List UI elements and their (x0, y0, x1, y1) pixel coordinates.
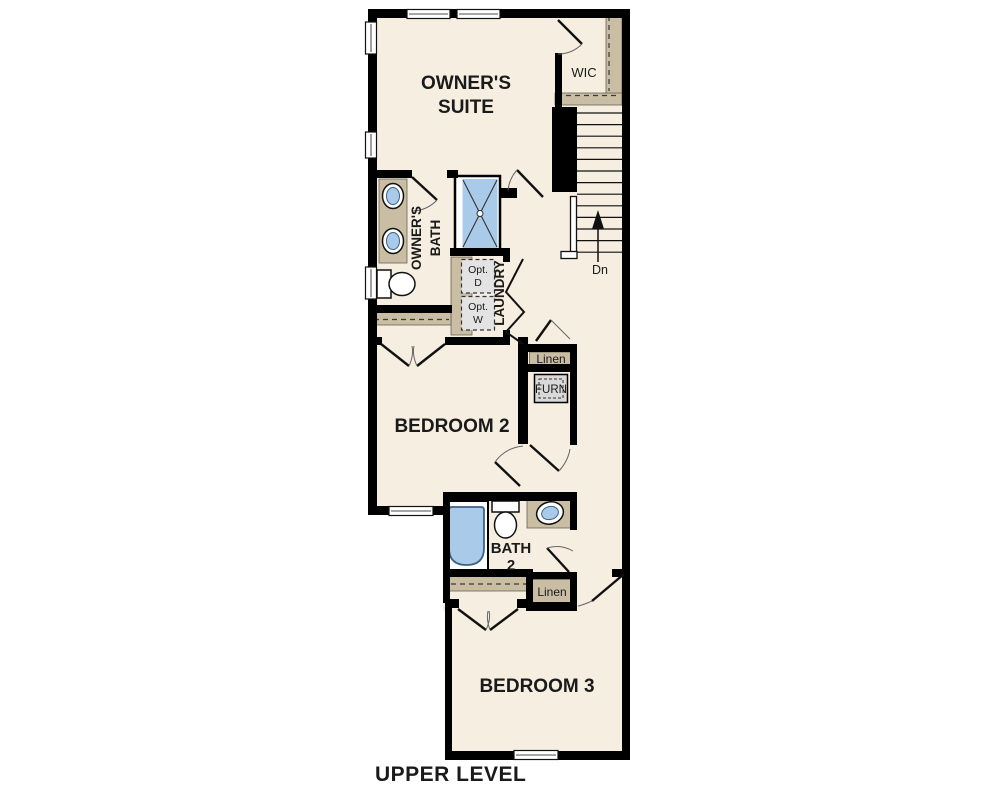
floor-areas (368, 9, 630, 760)
bedroom3-label: BEDROOM 3 (479, 676, 594, 697)
owners-bath-sink-1 (383, 184, 404, 209)
bath2-toilet (492, 501, 519, 538)
stairs-dn-label: Dn (592, 263, 608, 277)
stair-railing-cap (561, 252, 577, 259)
window-bath-left (366, 267, 377, 299)
floorplan-drawing: OWNER'S SUITE WIC OWNER'S BATH LAUNDRY O… (0, 0, 1000, 800)
bath2-label-2: 2 (507, 557, 515, 574)
opt-washer-label-1: Opt. (468, 301, 488, 313)
owners-bath-shower (455, 176, 500, 251)
owners-bath-label-1: OWNER'S (409, 206, 424, 270)
window-bedroom3-bottom (514, 751, 558, 760)
window-suite-left-2 (366, 132, 377, 158)
window-suite-left-1 (366, 22, 377, 54)
bath2-tub (446, 501, 488, 571)
window-suite-top-2 (457, 10, 500, 19)
bedroom2-closet (371, 312, 451, 325)
owners-bath-label-2: BATH (428, 220, 443, 257)
opt-dryer-label-1: Opt. (468, 264, 488, 276)
laundry-label: LAUNDRY (492, 260, 507, 326)
stair-railing (571, 197, 577, 257)
linen-lower-label: Linen (537, 585, 566, 599)
furnace-label: FURN (535, 384, 567, 396)
opt-dryer-label-2: D (474, 277, 482, 289)
owners-bath-toilet (377, 270, 415, 298)
owners-bath-sink-2 (383, 229, 404, 254)
owners-suite-label-2: SUITE (438, 97, 494, 118)
wic-shelf-bottom (555, 93, 622, 105)
owners-suite-label-1: OWNER'S (421, 73, 511, 94)
bath2-label-1: BATH (491, 540, 532, 557)
floorplan-page: OWNER'S SUITE WIC OWNER'S BATH LAUNDRY O… (0, 0, 1000, 800)
window-bedroom2-bottom (389, 507, 433, 516)
linen-upper-label: Linen (536, 352, 565, 366)
bedroom2-label: BEDROOM 2 (394, 416, 509, 437)
opt-washer-label-2: W (473, 314, 483, 326)
window-suite-top-1 (407, 10, 450, 19)
plan-title: UPPER LEVEL (375, 763, 526, 786)
wic-label: WIC (571, 65, 596, 80)
bedroom2-closet-shelf (371, 312, 451, 325)
